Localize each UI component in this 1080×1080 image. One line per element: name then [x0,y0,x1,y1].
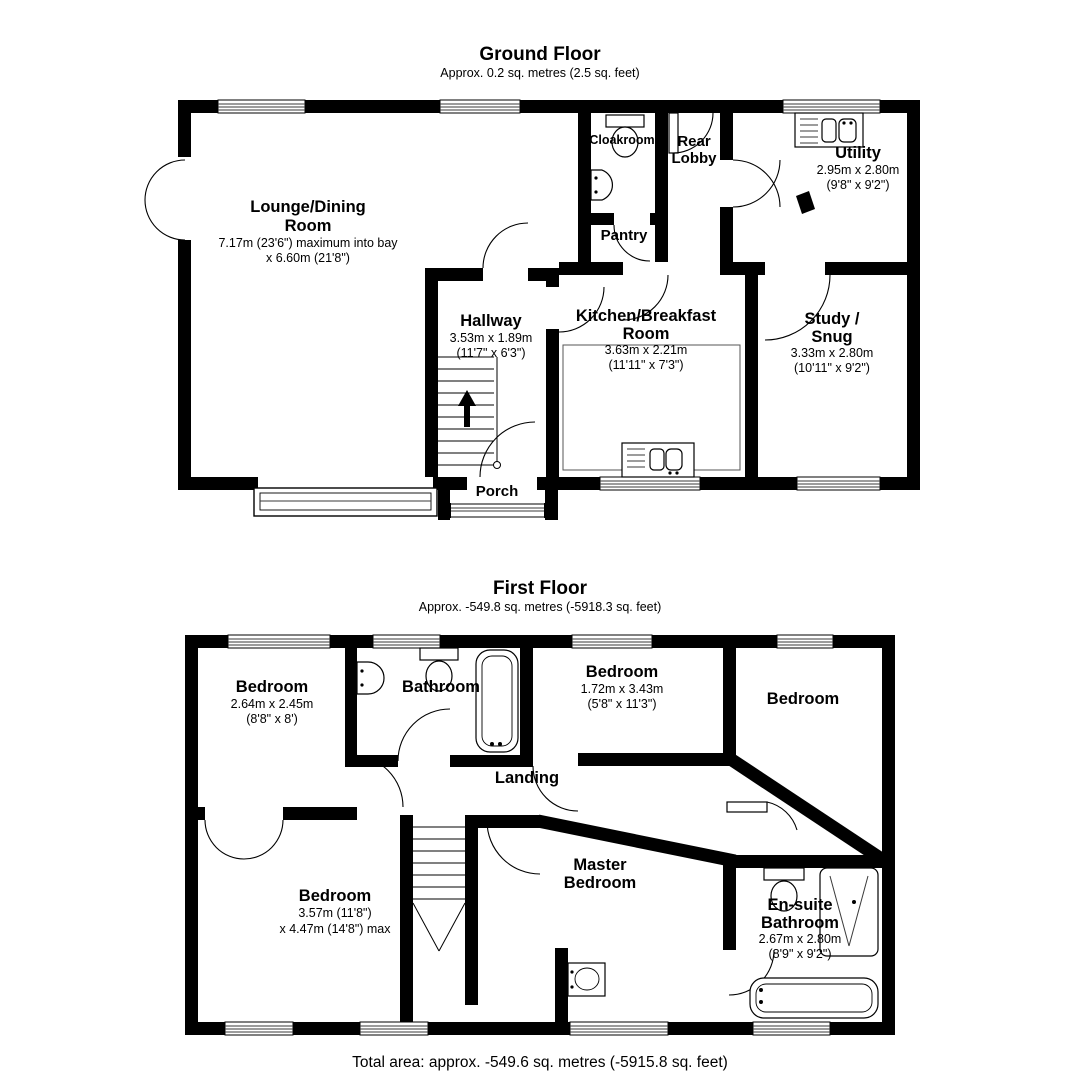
room-name: Study / [804,310,859,328]
room-name: Landing [495,769,559,787]
window-icon [225,1022,293,1035]
room-label-pantry: Pantry [601,227,648,244]
window-icon [600,477,700,490]
ground-floor-subtitle: Approx. 0.2 sq. metres (2.5 sq. feet) [440,66,639,80]
room-name: Lobby [672,150,718,167]
front-door-icon [480,422,535,477]
window-icon [777,635,833,648]
room-name: Bathroom [402,678,480,696]
bathroom-door-icon [398,709,450,761]
window-icon [440,100,520,113]
room-label-study: Study / Snug 3.33m x 2.80m (10'11" x 9'2… [791,310,874,375]
room-name: Bathroom [761,914,839,932]
room-dims: (11'11" x 7'3") [608,358,683,372]
room-dims: (5'8" x 11'3") [587,697,656,711]
room-dims: 3.33m x 2.80m [791,346,874,360]
cloakroom-sink-icon [591,170,612,200]
window-icon [797,477,880,490]
total-area-text: Total area: approx. -549.6 sq. metres (-… [352,1054,728,1071]
room-name: En-suite [767,896,832,914]
master-bedroom-door-icon [487,821,540,874]
window-icon [373,635,440,648]
room-dims: 3.53m x 1.89m [450,331,533,345]
room-name: Hallway [460,312,522,330]
room-dims: 1.72m x 3.43m [581,682,664,696]
room-name: Bedroom [236,678,308,696]
room-label-lounge: Lounge/Dining Room 7.17m (23'6") maximum… [218,198,398,265]
room-dims: (9'8" x 9'2") [827,178,890,192]
room-label-bathroom: Bathroom [402,678,480,696]
bedroom-double-doors-icon [205,820,283,859]
room-name: Bedroom [586,663,658,681]
window-icon [218,100,305,113]
room-dims: 2.64m x 2.45m [231,697,314,711]
window-icon [783,100,880,113]
porch-window-icon [446,503,549,518]
room-label-kitchen: Kitchen/Breakfast Room 3.63m x 2.21m (11… [576,307,717,372]
first-floor-plan: First Floor Approx. -549.8 sq. metres (-… [185,578,895,1035]
utility-sink-icon [795,113,863,147]
room-name: Lounge/Dining [250,198,365,216]
room-label-ensuite: En-suite Bathroom 2.67m x 2.80m (8'9" x … [759,896,842,961]
ground-floor-plan: Ground Floor Approx. 0.2 sq. metres (2.5… [145,44,920,520]
room-name: Rear [677,133,711,150]
ground-floor-title: Ground Floor [479,44,601,65]
room-dims: x 4.47m (14'8") max [279,922,391,936]
room-label-landing: Landing [495,769,559,787]
room-label-cloakroom: Cloakroom [589,133,654,147]
first-floor-title: First Floor [493,578,588,599]
room-name: Cloakroom [589,133,654,147]
room-name: Kitchen/Breakfast [576,307,717,325]
room-dims: (10'11" x 9'2") [794,361,870,375]
room-name: Porch [476,483,519,500]
window-icon [570,1022,668,1035]
room-dims: (11'7" x 6'3") [456,346,525,360]
kitchen-sink-icon [622,443,694,477]
room-dims: 2.67m x 2.80m [759,932,842,946]
room-dims: x 6.60m (21'8") [266,251,350,265]
room-name: Utility [835,144,882,162]
room-label-bedroom-middle: Bedroom 1.72m x 3.43m (5'8" x 11'3") [581,663,664,711]
room-name: Room [623,325,670,343]
lounge-hallway-door-icon [483,223,528,268]
bedroom-right-door-icon [727,802,797,830]
stairs-up-arrow-icon [458,390,476,427]
bathroom-sink-icon [357,662,384,694]
room-dims: 2.95m x 2.80m [817,163,900,177]
room-name: Room [285,217,332,235]
bathroom-bath-icon [476,650,518,752]
room-label-utility: Utility 2.95m x 2.80m (9'8" x 9'2") [817,144,900,192]
room-name: Pantry [601,227,648,244]
room-label-bedroom-top-left: Bedroom 2.64m x 2.45m (8'8" x 8') [231,678,314,726]
window-icon [572,635,652,648]
room-name: Bedroom [564,874,636,892]
room-label-bedroom-lower-left: Bedroom 3.57m (11'8") x 4.47m (14'8") ma… [279,887,391,936]
utility-double-doors-icon [733,160,815,214]
room-name: Master [573,856,627,874]
room-dims: 3.63m x 2.21m [605,343,688,357]
window-icon [753,1022,830,1035]
room-dims: 3.57m (11'8") [298,906,371,920]
room-dims: (8'9" x 9'2") [769,947,832,961]
bay-window-icon [254,488,437,516]
room-label-porch: Porch [476,483,519,500]
room-label-bedroom-right: Bedroom [767,690,839,708]
stairs-icon [413,827,465,951]
room-name: Snug [811,328,852,346]
room-name: Bedroom [299,887,371,905]
window-icon [228,635,330,648]
window-icon [360,1022,428,1035]
room-dims: (8'8" x 8') [246,712,298,726]
floorplan-canvas: Ground Floor Approx. 0.2 sq. metres (2.5… [0,0,1080,1080]
room-label-hallway: Hallway 3.53m x 1.89m (11'7" x 6'3") [450,312,533,360]
ensuite-bath-icon [750,978,878,1018]
first-floor-subtitle: Approx. -549.8 sq. metres (-5918.3 sq. f… [419,600,661,614]
room-name: Bedroom [767,690,839,708]
room-label-rear-lobby: Rear Lobby [672,133,718,167]
room-dims: 7.17m (23'6") maximum into bay [218,236,398,250]
vanity-sink-icon [568,963,605,996]
room-label-master-bedroom: Master Bedroom [564,856,636,892]
